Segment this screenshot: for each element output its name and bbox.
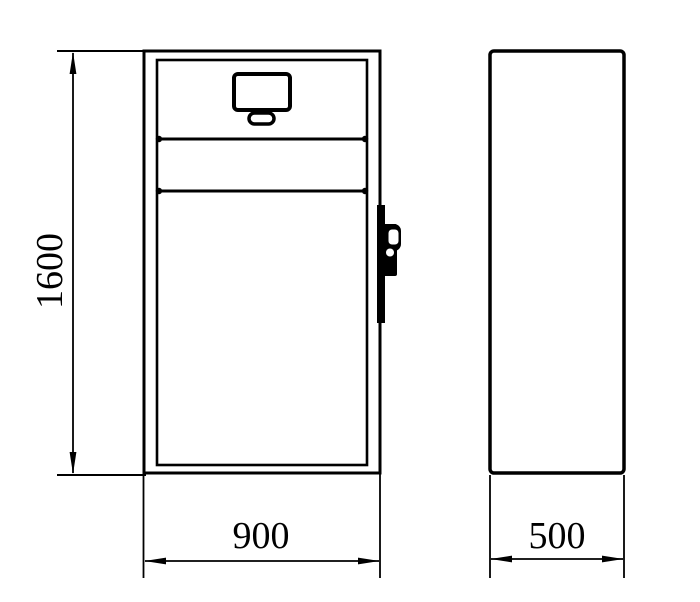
- divider-dot: [362, 188, 368, 194]
- front-view: [144, 51, 401, 473]
- door-lock-handle: [377, 205, 401, 323]
- divider-dot: [362, 136, 368, 142]
- display-screen: [234, 74, 290, 110]
- arrowhead-left-icon: [491, 556, 513, 563]
- technical-drawing: 1600 900 500: [0, 0, 700, 602]
- side-view-body: [490, 51, 624, 473]
- arrowhead-right-icon: [602, 556, 624, 563]
- arrowhead-left-icon: [145, 558, 167, 565]
- lock-pin-hole: [386, 249, 394, 257]
- divider-dot: [156, 188, 162, 194]
- height-dimension: 1600: [29, 51, 146, 475]
- drawing-canvas: 1600 900 500: [0, 0, 700, 602]
- divider-dot: [156, 136, 162, 142]
- height-dimension-label: 1600: [29, 233, 71, 309]
- depth-dimension-label: 500: [529, 515, 586, 557]
- card-slot: [249, 113, 274, 124]
- width-dimension: 900: [144, 474, 381, 578]
- arrowhead-right-icon: [358, 558, 380, 565]
- arrowhead-down-icon: [70, 452, 77, 474]
- arrowhead-up-icon: [70, 52, 77, 74]
- width-dimension-label: 900: [233, 515, 290, 557]
- lock-keyway: [389, 230, 399, 245]
- depth-dimension: 500: [490, 475, 624, 578]
- side-view: [490, 51, 624, 473]
